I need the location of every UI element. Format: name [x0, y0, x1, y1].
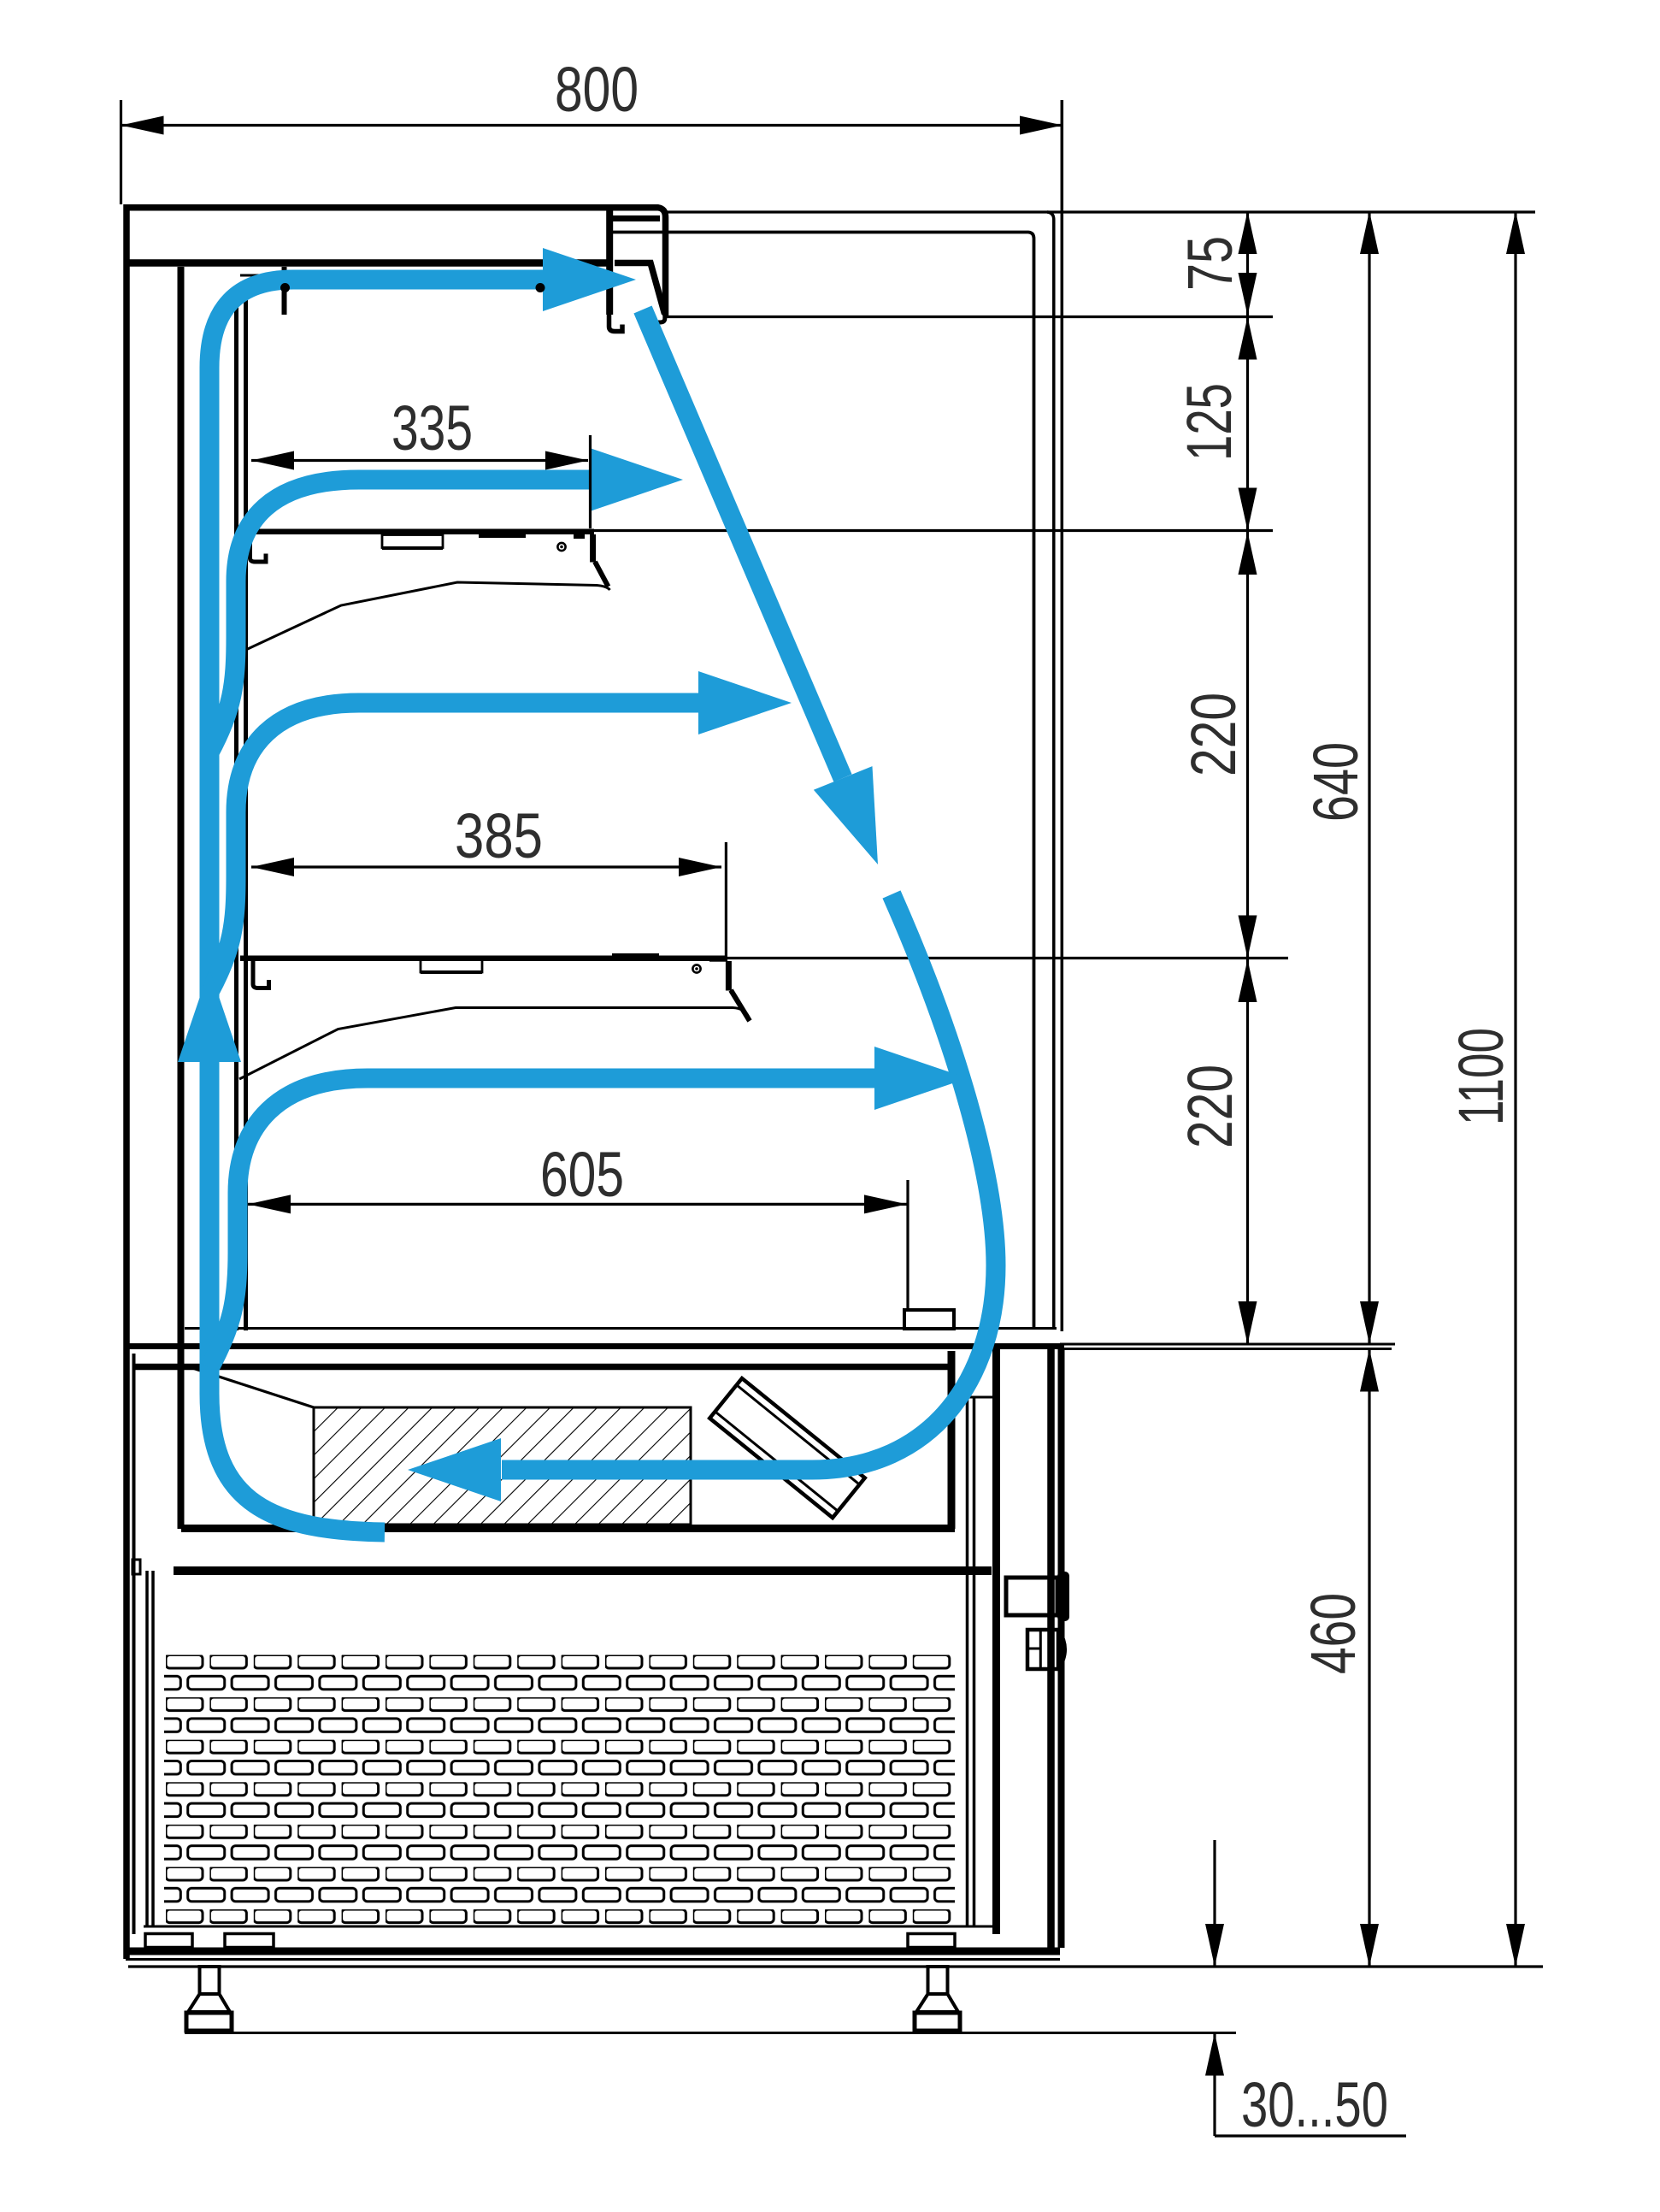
svg-text:220: 220 — [1178, 693, 1249, 776]
svg-text:800: 800 — [555, 54, 639, 125]
svg-text:1100: 1100 — [1445, 1028, 1516, 1125]
svg-text:125: 125 — [1174, 383, 1245, 461]
svg-text:220: 220 — [1174, 1065, 1245, 1148]
svg-text:640: 640 — [1300, 742, 1371, 822]
svg-text:30...50: 30...50 — [1241, 2069, 1388, 2140]
svg-text:385: 385 — [455, 800, 543, 871]
svg-text:605: 605 — [540, 1139, 624, 1210]
svg-text:75: 75 — [1174, 236, 1245, 291]
svg-text:335: 335 — [391, 392, 473, 463]
svg-text:460: 460 — [1298, 1593, 1369, 1674]
